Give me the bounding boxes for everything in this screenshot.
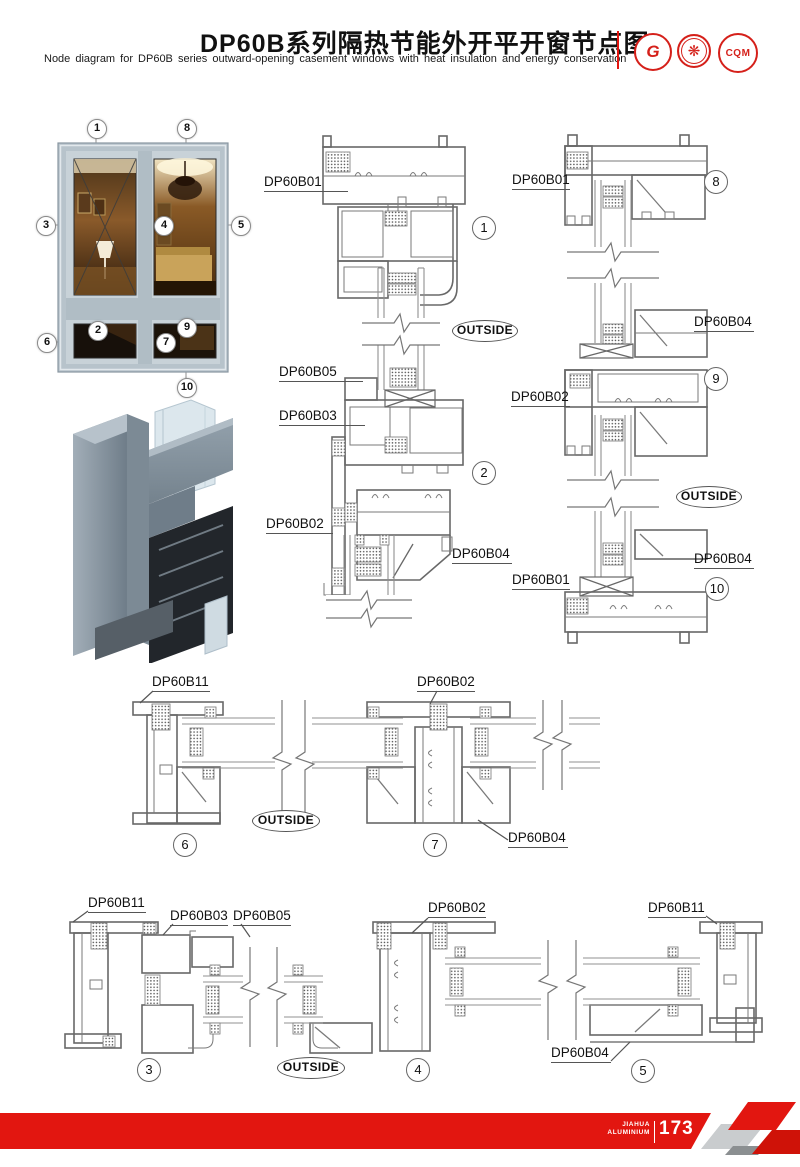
window-callout: 8 <box>177 119 197 139</box>
detail-circle: 9 <box>704 367 728 391</box>
footer-brand-bottom: ALUMINIUM <box>568 1129 650 1137</box>
section-drawing-details-8-9-10 <box>515 128 770 648</box>
detail-circle: 8 <box>704 170 728 194</box>
page-number: 173 <box>659 1118 694 1140</box>
detail-circle: 1 <box>472 216 496 240</box>
profile-label: DP60B02 <box>428 900 486 918</box>
profile-label: DP60B02 <box>266 516 333 534</box>
profile-label: DP60B04 <box>452 546 512 564</box>
window-callout: 7 <box>156 333 176 353</box>
profile-label: DP60B04 <box>508 830 568 848</box>
window-callout: 5 <box>231 216 251 236</box>
footer-brand: JIAHUA ALUMINIUM <box>568 1121 650 1137</box>
profile-label: DP60B05 <box>233 908 291 926</box>
profile-label: DP60B05 <box>279 364 363 382</box>
detail-circle: 4 <box>406 1058 430 1082</box>
profile-label: DP60B04 <box>694 314 754 332</box>
window-callout: 2 <box>88 321 108 341</box>
window-callout: 9 <box>177 318 197 338</box>
profile-label: DP60B03 <box>279 408 365 426</box>
outside-ellipse: OUTSIDE <box>277 1057 345 1079</box>
window-callout: 10 <box>177 378 197 398</box>
detail-circle: 10 <box>705 577 729 601</box>
profile-label: DP60B01 <box>512 572 570 590</box>
cqm-logo-text: CQM <box>726 48 751 59</box>
profile-label: DP60B02 <box>417 674 475 692</box>
window-callout: 1 <box>87 119 107 139</box>
window-photo <box>30 115 250 395</box>
profile-label: DP60B01 <box>512 172 570 190</box>
cqm-logo: CQM <box>718 33 758 73</box>
profile-label: DP60B03 <box>170 908 228 926</box>
profile-label: DP60B01 <box>264 174 348 192</box>
seal-certification-logo: ❋ <box>677 34 711 68</box>
window-callout: 6 <box>37 333 57 353</box>
detail-circle: 6 <box>173 833 197 857</box>
footer-brand-top: JIAHUA <box>568 1121 650 1129</box>
window-callout: 4 <box>154 216 174 236</box>
detail-circle: 2 <box>472 461 496 485</box>
profile-label: DP60B11 <box>88 895 146 913</box>
page-subtitle: Node diagram for DP60B series outward-op… <box>44 53 596 65</box>
profile-3d-render <box>55 398 240 663</box>
window-callout: 3 <box>36 216 56 236</box>
profile-label: DP60B04 <box>551 1045 611 1063</box>
gb-logo-letter: G <box>646 42 659 62</box>
section-drawing-details-3-4-5 <box>60 890 770 1085</box>
outside-ellipse: OUTSIDE <box>252 810 320 832</box>
profile-label: DP60B11 <box>648 900 706 918</box>
gb-certification-logo: G <box>634 33 672 71</box>
detail-circle: 3 <box>137 1058 161 1082</box>
profile-label: DP60B11 <box>152 674 210 692</box>
seal-logo-glyph: ❋ <box>688 42 701 60</box>
outside-ellipse: OUTSIDE <box>676 486 742 508</box>
detail-circle: 5 <box>631 1059 655 1083</box>
catalog-page: DP60B系列隔热节能外开平开窗节点图 Node diagram for DP6… <box>0 0 800 1167</box>
logo-divider <box>617 31 619 69</box>
profile-label: DP60B02 <box>511 389 570 407</box>
detail-circle: 7 <box>423 833 447 857</box>
profile-label: DP60B04 <box>694 551 754 569</box>
footer-divider <box>654 1121 655 1143</box>
outside-ellipse: OUTSIDE <box>452 320 518 342</box>
